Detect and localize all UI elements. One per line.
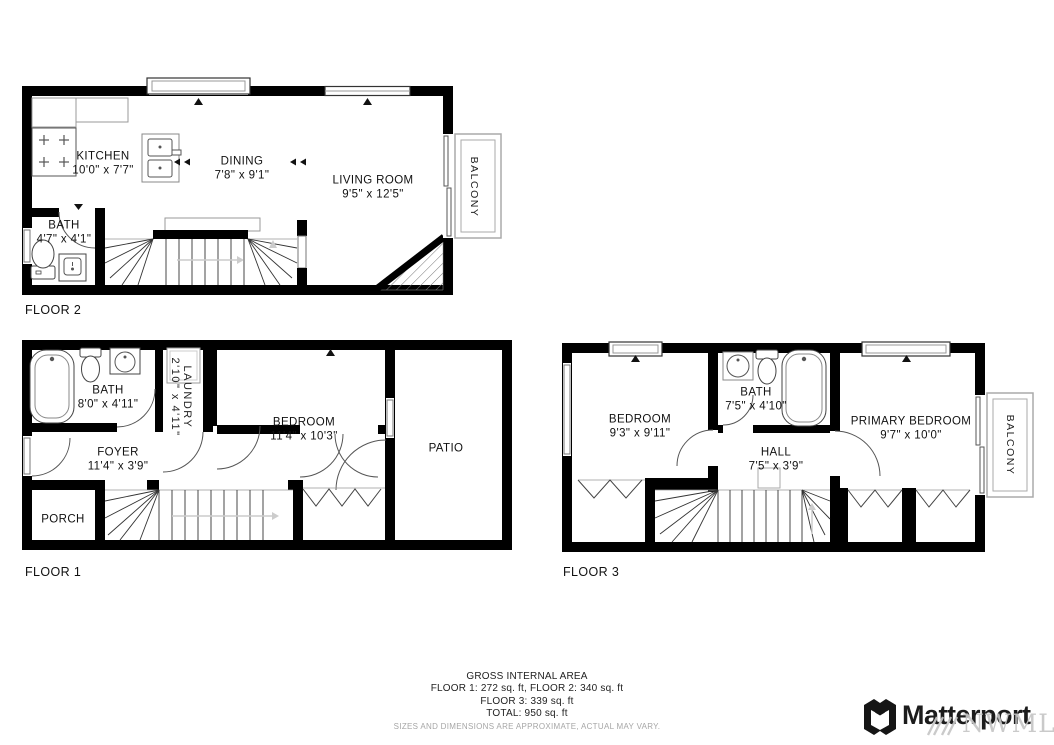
window-icon	[23, 228, 32, 264]
floorplan-sheet: KITCHEN 10'0" x 7'7" DINING 7'8" x 9'1" …	[0, 0, 1054, 745]
floor3-drawing	[560, 338, 1054, 558]
room-dims: 9'3" x 9'11"	[609, 427, 671, 441]
room-label-foyer: FOYER 11'4" x 3'9"	[88, 447, 149, 474]
room-label-living-room: LIVING ROOM 9'5" x 12'5"	[332, 175, 413, 202]
summary-disclaimer: SIZES AND DIMENSIONS ARE APPROXIMATE, AC…	[394, 721, 661, 733]
room-name: BATH	[92, 385, 123, 397]
room-name: PORCH	[41, 513, 85, 525]
room-label-primary-bedroom: PRIMARY BEDROOM 9'7" x 10'0"	[851, 416, 972, 443]
sink-icon	[59, 254, 86, 281]
room-dims: 11'4" x 3'9"	[88, 460, 149, 474]
room-label-bath: BATH 7'5" x 4'10"	[725, 387, 786, 414]
room-label-hall: HALL 7'5" x 3'9"	[749, 447, 804, 474]
room-dims: 9'7" x 10'0"	[851, 429, 972, 443]
room-name: PATIO	[429, 442, 464, 454]
summary-floor3: FLOOR 3: 339 sq. ft	[394, 696, 661, 708]
room-name: BALCONY	[468, 157, 480, 218]
balcony-slider-door	[975, 395, 985, 495]
area-summary: GROSS INTERNAL AREA FLOOR 1: 272 sq. ft,…	[394, 671, 661, 733]
floor1-label: FLOOR 1	[25, 565, 81, 579]
toilet-icon	[756, 350, 778, 384]
stove-icon	[32, 128, 76, 176]
floor1-plan: BATH 8'0" x 4'11" LAUNDRY 2'10" x 4'11" …	[22, 338, 514, 588]
room-label-balcony: BALCONY	[468, 157, 480, 218]
room-label-balcony: BALCONY	[1004, 415, 1016, 476]
room-dims: 7'8" x 9'1"	[215, 169, 270, 183]
kitchen-sink-icon	[142, 134, 181, 182]
room-name: KITCHEN	[76, 151, 129, 163]
room-label-porch: PORCH	[41, 513, 85, 527]
room-name: LIVING ROOM	[332, 175, 413, 187]
room-name: FOYER	[97, 447, 139, 459]
stair-wall-window	[297, 220, 307, 285]
summary-floor1-floor2: FLOOR 1: 272 sq. ft, FLOOR 2: 340 sq. ft	[394, 683, 661, 695]
room-name: BEDROOM	[273, 417, 335, 429]
balcony-slider-door	[443, 134, 453, 238]
bathtub-icon	[30, 350, 74, 423]
room-label-bedroom: BEDROOM 9'3" x 9'11"	[609, 414, 671, 441]
room-name: BATH	[740, 387, 771, 399]
floor3-label: FLOOR 3	[563, 565, 619, 579]
room-label-laundry: LAUNDRY 2'10" x 4'11"	[169, 357, 193, 436]
sink-icon	[110, 348, 140, 374]
room-name: BALCONY	[1004, 415, 1016, 476]
room-label-bath: BATH 4'7" x 4'1"	[37, 220, 92, 247]
nwmls-slashes-icon	[926, 711, 962, 737]
room-dims: 10'0" x 7'7"	[72, 164, 133, 178]
room-label-bath: BATH 8'0" x 4'11"	[78, 385, 139, 412]
sink-icon	[723, 352, 753, 380]
branding: Matterport NWMLS	[862, 695, 1054, 743]
room-name: PRIMARY BEDROOM	[851, 416, 972, 428]
matterport-logo-icon	[862, 697, 898, 737]
nwmls-watermark: NWMLS	[926, 711, 1054, 737]
room-dims: 8'0" x 4'11"	[78, 398, 139, 412]
room-name: LAUNDRY	[181, 357, 193, 436]
room-name: BATH	[48, 220, 79, 232]
floor2-drawing	[22, 70, 502, 305]
room-dims: 4'7" x 4'1"	[37, 233, 92, 247]
floor2-plan: KITCHEN 10'0" x 7'7" DINING 7'8" x 9'1" …	[22, 70, 507, 320]
toilet-icon	[80, 348, 101, 382]
room-label-patio: PATIO	[429, 442, 464, 456]
room-dims: 11'4" x 10'3"	[270, 430, 337, 444]
room-dims: 9'5" x 12'5"	[332, 188, 413, 202]
bathtub-icon	[782, 350, 826, 426]
nwmls-watermark-text: NWMLS	[962, 711, 1054, 737]
room-label-kitchen: KITCHEN 10'0" x 7'7"	[72, 151, 133, 178]
room-dims: 7'5" x 3'9"	[749, 460, 804, 474]
room-name: BEDROOM	[609, 414, 671, 426]
room-label-dining: DINING 7'8" x 9'1"	[215, 156, 270, 183]
room-dims: 2'10" x 4'11"	[169, 357, 181, 436]
room-name: HALL	[761, 447, 791, 459]
room-name: DINING	[221, 156, 264, 168]
floor3-plan: BEDROOM 9'3" x 9'11" BATH 7'5" x 4'10" P…	[560, 338, 1054, 588]
summary-title: GROSS INTERNAL AREA	[394, 671, 661, 683]
floor2-label: FLOOR 2	[25, 303, 81, 317]
room-dims: 7'5" x 4'10"	[725, 400, 786, 414]
summary-total: TOTAL: 950 sq. ft	[394, 708, 661, 720]
room-label-bedroom: BEDROOM 11'4" x 10'3"	[270, 417, 337, 444]
